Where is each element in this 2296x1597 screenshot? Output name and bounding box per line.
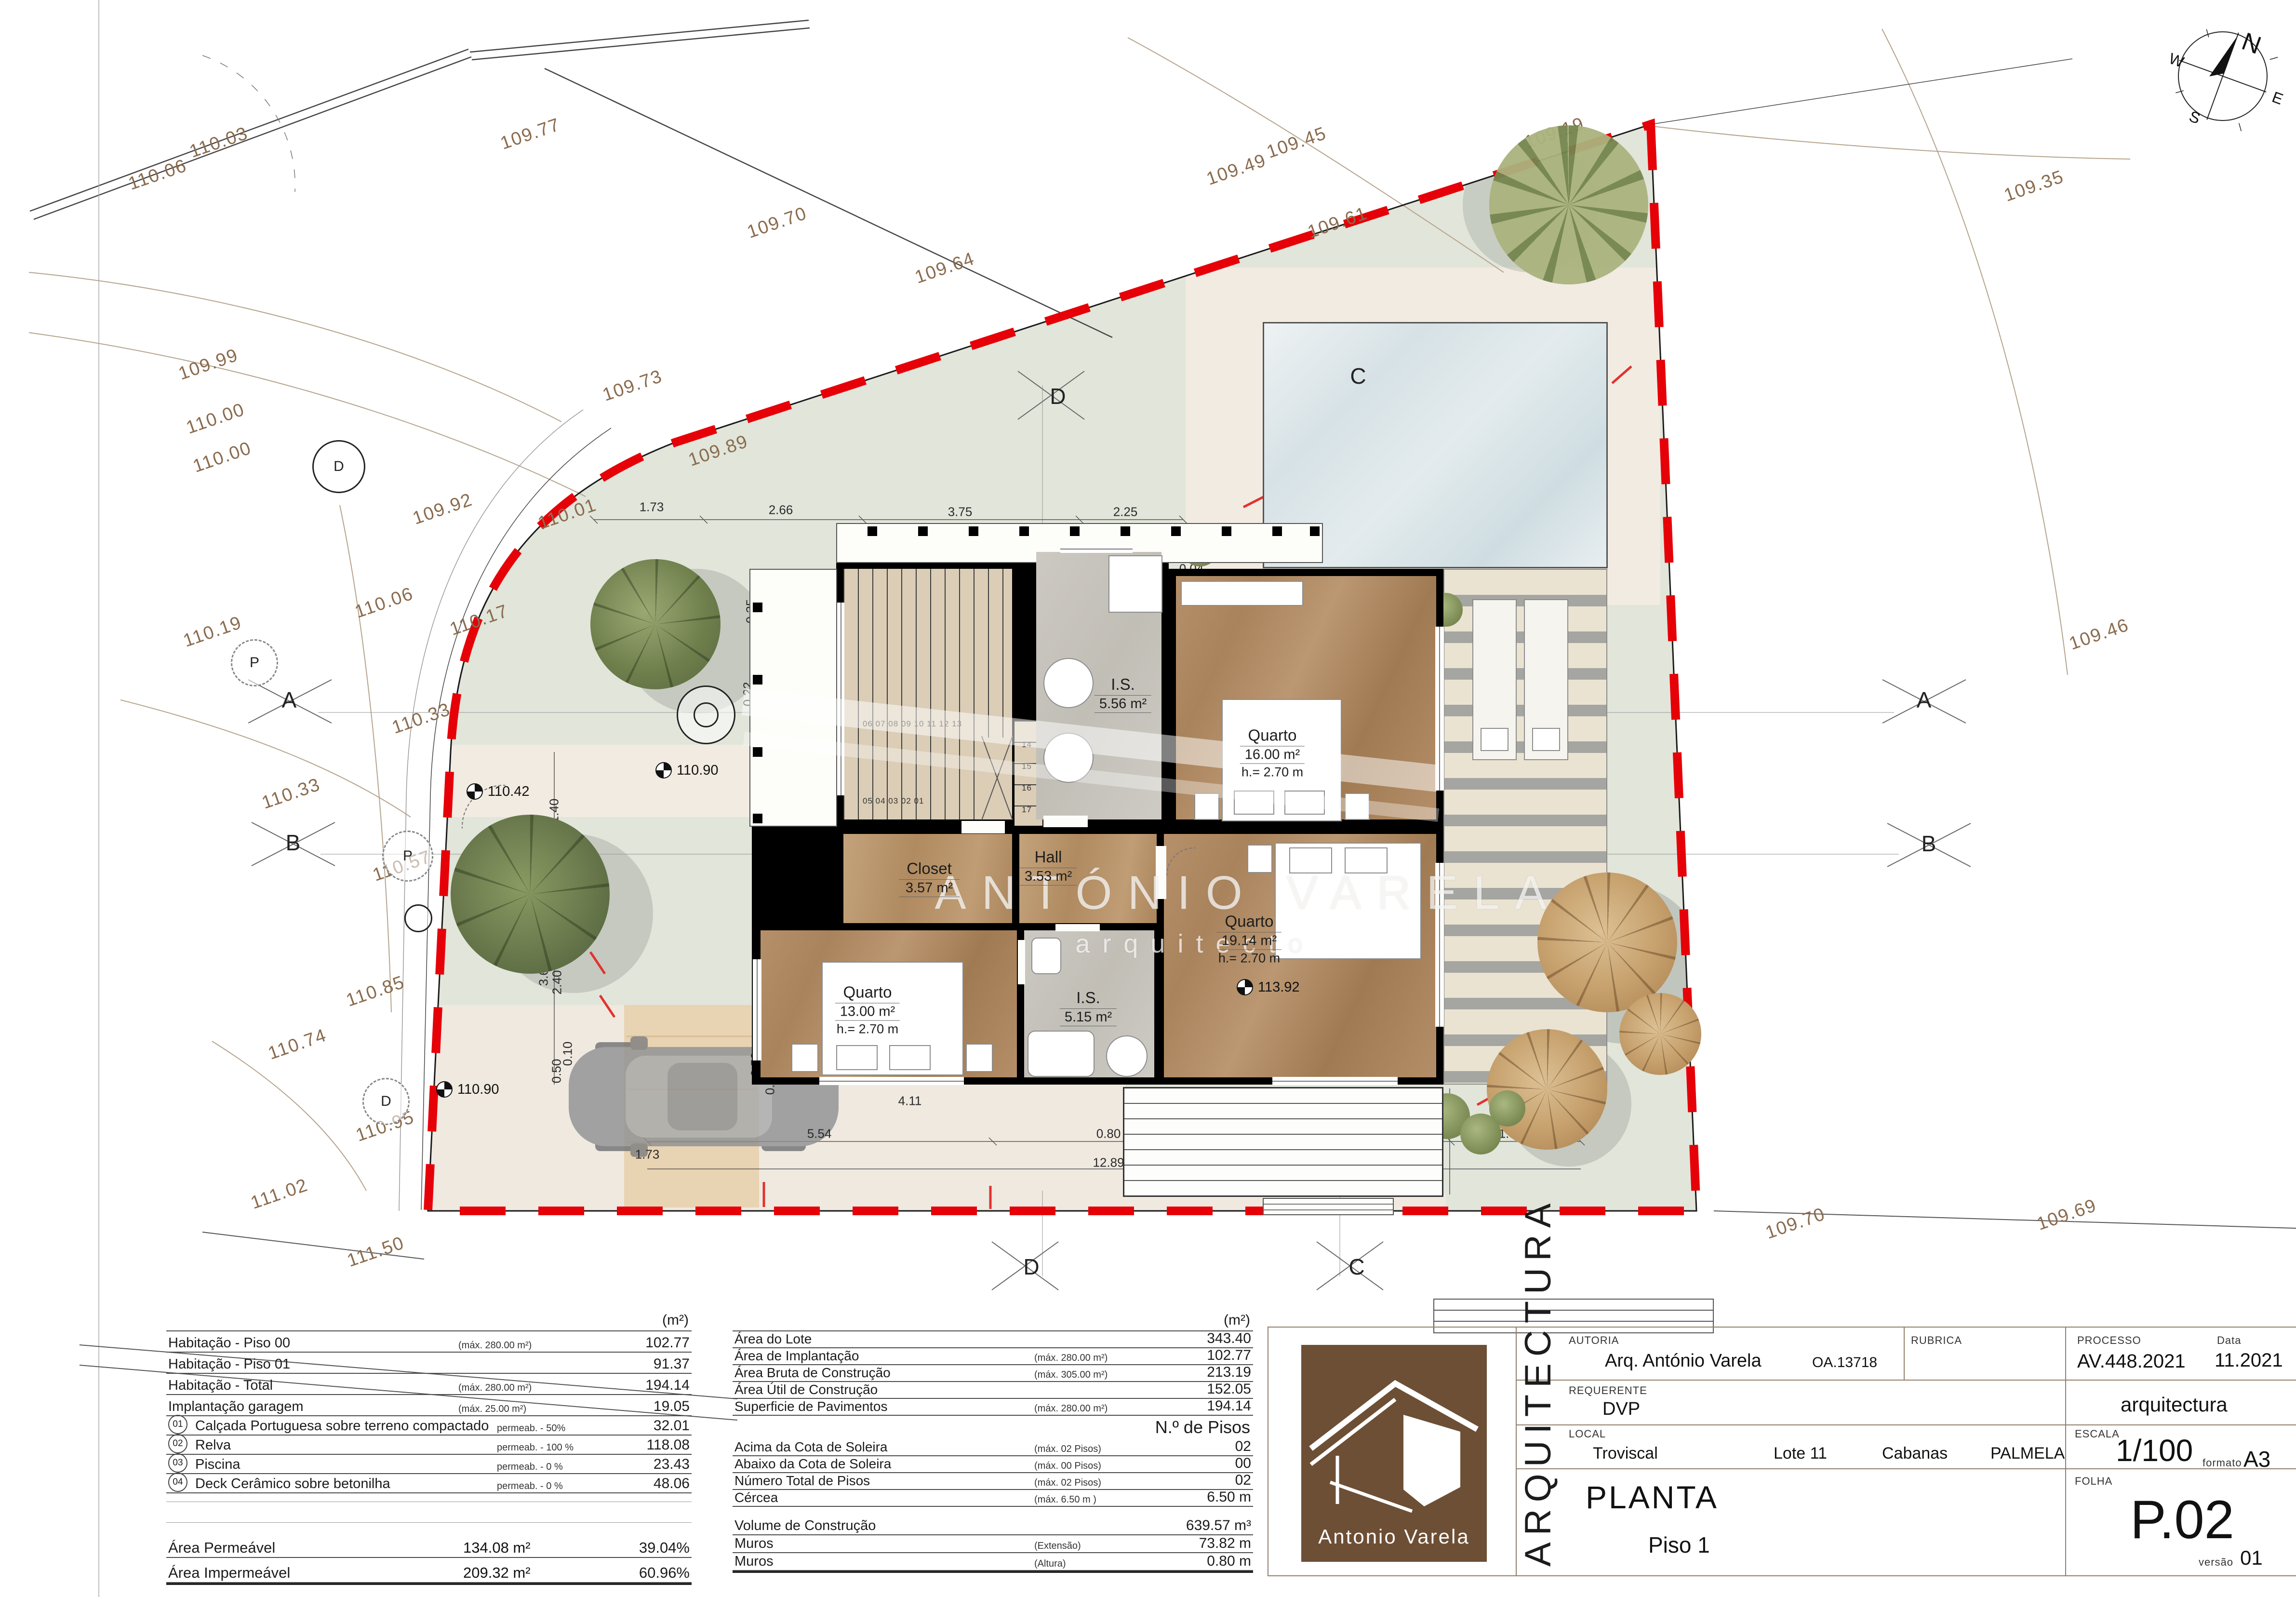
level-marker: 113.92 xyxy=(1237,979,1300,995)
row-permeability: permeab. - 50% xyxy=(497,1423,627,1434)
room-name: I.S. xyxy=(1095,675,1151,696)
local-troviscal: Troviscal xyxy=(1593,1444,1658,1463)
window xyxy=(1060,545,1133,553)
table-superficies: 01Calçada Portuguesa sobre terreno compa… xyxy=(166,1416,692,1493)
room-name: Quarto xyxy=(1217,913,1281,933)
row-note: (máx. 25.00 m²) xyxy=(458,1404,617,1415)
column xyxy=(918,526,928,536)
section-marker-d: D xyxy=(1023,1254,1039,1280)
row-value: 194.14 xyxy=(617,1377,690,1394)
row-label: Área Impermeável xyxy=(168,1564,463,1582)
room-label: Closet3.57 m² xyxy=(899,859,960,897)
table-row: 02Relvapermeab. - 100 %118.08 xyxy=(166,1436,692,1455)
utility-marker-p: P xyxy=(382,831,433,882)
requerente-value: DVP xyxy=(1602,1399,1640,1420)
column xyxy=(969,526,978,536)
logo-house-icon xyxy=(1301,1345,1487,1518)
table-volumes: Volume de Construção639.57 m³Muros(Exten… xyxy=(733,1517,1253,1573)
column xyxy=(868,526,877,536)
row-note: (máx. 6.50 m ) xyxy=(1034,1494,1179,1505)
row-value: 02 xyxy=(1179,1472,1251,1489)
room-area: 19.14 m² xyxy=(1217,933,1281,950)
nightstand xyxy=(791,1044,818,1072)
row-label: Habitação - Piso 00 xyxy=(168,1335,458,1351)
row-label: Área do Lote xyxy=(734,1331,1034,1347)
table-row: Área Permeável134.08 m²39.04% xyxy=(166,1533,692,1558)
row-label: Abaixo da Cota de Soleira xyxy=(734,1456,1034,1472)
row-note: (máx. 305.00 m²) xyxy=(1034,1369,1179,1381)
room-area: 13.00 m² xyxy=(835,1004,900,1021)
section-marker-a: A xyxy=(1917,687,1932,713)
row-value: 134.08 m² xyxy=(463,1539,608,1557)
processo-value: AV.448.2021 xyxy=(2077,1351,2186,1372)
sheet-subtitle: Piso 1 xyxy=(1648,1532,1710,1558)
compass-rose: N E S W xyxy=(2163,17,2285,135)
autumn-tree xyxy=(1619,993,1701,1075)
room-name: Hall xyxy=(1020,848,1077,868)
column xyxy=(1310,526,1320,536)
section-marker-b: B xyxy=(1922,831,1936,857)
row-value: 23.43 xyxy=(627,1456,690,1473)
compass-n: N xyxy=(2238,27,2265,60)
drawing-sheet: N E S W xyxy=(0,0,2296,1597)
compass-e: E xyxy=(2270,88,2285,108)
table-row: Volume de Construção639.57 m³ xyxy=(733,1517,1253,1535)
table-areas-totais: Área Permeável134.08 m²39.04%Área Imperm… xyxy=(166,1533,692,1585)
row-label: Superficie de Pavimentos xyxy=(734,1399,1034,1414)
table-row: Muros(Altura)0.80 m xyxy=(733,1553,1253,1571)
table-row: Área Impermeável209.32 m²60.96% xyxy=(166,1558,692,1583)
row-value: 91.37 xyxy=(617,1356,690,1372)
compass-s: S xyxy=(2187,107,2203,127)
row-number-badge: 04 xyxy=(168,1473,187,1492)
column xyxy=(1121,526,1130,536)
formato-label: formato xyxy=(2203,1457,2242,1469)
table-row: 04Deck Cerâmico sobre betonilhapermeab. … xyxy=(166,1474,692,1493)
row-value: 639.57 m³ xyxy=(1140,1517,1251,1534)
door-gap xyxy=(1043,816,1088,827)
logo-antonio-varela: Antonio Varela xyxy=(1301,1345,1487,1562)
manhole-marker xyxy=(677,685,735,744)
room-height: h.= 2.70 m xyxy=(835,1021,900,1037)
table-row: Cércea(máx. 6.50 m )6.50 m xyxy=(733,1490,1253,1507)
titleblock-discipline-vertical: ARQUITECTURA xyxy=(1517,1345,1559,1567)
table-unit-header: (m²) xyxy=(166,1312,692,1331)
local-lote: Lote 11 xyxy=(1774,1444,1827,1463)
row-label: Área Bruta de Construção xyxy=(734,1365,1034,1381)
door-gap xyxy=(961,821,1005,833)
pergola-terrace xyxy=(1123,1087,1443,1197)
lounger-pillow xyxy=(1481,728,1508,751)
row-value: 00 xyxy=(1179,1455,1251,1472)
bush xyxy=(1489,1090,1525,1127)
dimension-label: 3.75 xyxy=(948,505,973,520)
table-row: Área do Lote343.40 xyxy=(733,1331,1253,1348)
row-label: Implantação garagem xyxy=(168,1399,458,1415)
dimension-label: 0.50 xyxy=(549,1059,564,1084)
manhole-inner xyxy=(694,702,719,727)
row-label: Cércea xyxy=(734,1490,1034,1505)
utility-marker-d: D xyxy=(312,440,365,493)
column xyxy=(753,675,762,684)
autoria-number: OA.13718 xyxy=(1812,1355,1877,1371)
row-note: (máx. 280.00 m²) xyxy=(458,1340,617,1351)
row-label: Área Permeável xyxy=(168,1539,463,1557)
autumn-tree xyxy=(1487,1029,1607,1150)
room-area: 3.57 m² xyxy=(899,880,960,897)
bath-sink xyxy=(1106,1035,1148,1077)
level-value: 113.92 xyxy=(1258,980,1300,995)
row-label: Habitação - Piso 01 xyxy=(168,1356,458,1372)
local-palmela: PALMELA xyxy=(1990,1444,2065,1463)
room-label: Quarto16.00 m²h.= 2.70 m xyxy=(1240,726,1305,780)
column xyxy=(1171,526,1181,536)
row-label: Muros xyxy=(734,1536,1034,1552)
row-value: 152.05 xyxy=(1179,1381,1251,1397)
row-value: 6.50 m xyxy=(1179,1489,1251,1505)
table-row: Área Bruta de Construção(máx. 305.00 m²)… xyxy=(733,1365,1253,1382)
level-value: 110.90 xyxy=(457,1082,499,1098)
room-area: 5.56 m² xyxy=(1095,696,1151,713)
local-cabanas: Cabanas xyxy=(1882,1444,1948,1463)
row-note: (Extensão) xyxy=(1034,1541,1140,1552)
window xyxy=(753,959,761,1060)
level-value: 110.42 xyxy=(488,784,530,800)
dimension-label: 2.40 xyxy=(550,970,565,995)
bath-counter xyxy=(1108,555,1162,613)
row-number-badge: 02 xyxy=(168,1434,187,1453)
table-row: Abaixo da Cota de Soleira(máx. 00 Pisos)… xyxy=(733,1456,1253,1473)
room-name: Quarto xyxy=(1240,726,1305,747)
bath-sink xyxy=(1043,658,1094,708)
row-number-badge: 01 xyxy=(168,1415,187,1434)
column xyxy=(1070,526,1080,536)
row-value: 02 xyxy=(1179,1438,1251,1455)
row-value: 102.77 xyxy=(1179,1347,1251,1364)
table-row: Implantação garagem(máx. 25.00 m²)19.05 xyxy=(166,1395,692,1416)
local-label: LOCAL xyxy=(1569,1428,1606,1440)
row-permeability: permeab. - 100 % xyxy=(497,1442,627,1453)
bed-pillow xyxy=(889,1045,931,1070)
table-habitacao: (m²)Habitação - Piso 00(máx. 280.00 m²)1… xyxy=(166,1312,692,1416)
versao-label: versão xyxy=(2199,1556,2233,1569)
column xyxy=(1222,526,1231,536)
row-label: Relva xyxy=(195,1437,497,1453)
row-value: 213.19 xyxy=(1179,1364,1251,1381)
level-marker: 110.90 xyxy=(436,1081,499,1098)
tree xyxy=(451,815,610,974)
column xyxy=(753,814,762,823)
row-permeability: permeab. - 0 % xyxy=(497,1481,627,1492)
row-value: 102.77 xyxy=(617,1335,690,1351)
processo-label: PROCESSO xyxy=(2077,1334,2141,1347)
terrace-step xyxy=(1263,1198,1394,1215)
level-symbol xyxy=(1237,979,1253,995)
utility-marker-d: D xyxy=(362,1078,410,1125)
room-label: Hall3.53 m² xyxy=(1020,848,1077,886)
column xyxy=(1272,526,1282,536)
room-name: I.S. xyxy=(1060,989,1117,1009)
row-value: 73.82 m xyxy=(1140,1535,1251,1552)
table-row: Área Útil de Construção152.05 xyxy=(733,1382,1253,1399)
row-value: 0.80 m xyxy=(1140,1553,1251,1570)
discipline-value: arquitectura xyxy=(2121,1393,2228,1416)
row-label: Área Útil de Construção xyxy=(734,1382,1034,1397)
table-unit-header: (m²) xyxy=(733,1312,1253,1331)
room-label: Quarto13.00 m²h.= 2.70 m xyxy=(835,983,900,1037)
bathtub xyxy=(1028,1031,1095,1077)
row-number-badge: 03 xyxy=(168,1453,187,1473)
dimension-label: 2.66 xyxy=(769,503,793,518)
level-marker: 110.42 xyxy=(467,783,530,800)
row-value: 19.05 xyxy=(617,1398,690,1415)
row-value: 32.01 xyxy=(627,1418,690,1434)
room-name: Closet xyxy=(899,859,960,880)
pisos-header: N.º de Pisos xyxy=(733,1417,1253,1439)
escala-label: ESCALA xyxy=(2075,1428,2120,1440)
table-row: Muros(Extensão)73.82 m xyxy=(733,1535,1253,1553)
row-value: 48.06 xyxy=(627,1476,690,1492)
row-value: 209.32 m² xyxy=(463,1564,608,1582)
row-note: (Altura) xyxy=(1034,1558,1140,1570)
stair-numbers-bottom: 05 04 03 02 01 xyxy=(863,796,924,806)
level-value: 110.90 xyxy=(677,763,719,778)
table-pisos: N.º de PisosAcima da Cota de Soleira(máx… xyxy=(733,1417,1253,1507)
row-label: Acima da Cota de Soleira xyxy=(734,1439,1034,1455)
formato-value: A3 xyxy=(2243,1446,2270,1472)
retaining-wall xyxy=(1434,1299,1713,1333)
escala-value: 1/100 xyxy=(2116,1433,2193,1468)
wardrobe xyxy=(1181,581,1303,606)
row-label: Habitação - Total xyxy=(168,1378,458,1394)
row-note: (máx. 02 Pisos) xyxy=(1034,1444,1179,1455)
row-value: 194.14 xyxy=(1179,1398,1251,1414)
room-area: 16.00 m² xyxy=(1240,747,1305,764)
lounger-pillow xyxy=(1532,728,1560,751)
window xyxy=(1272,1077,1398,1085)
section-marker-b: B xyxy=(286,830,301,856)
requerente-label: REQUERENTE xyxy=(1569,1384,1647,1397)
section-marker-d: D xyxy=(1050,383,1066,409)
table-row: Área de Implantação(máx. 280.00 m²)102.7… xyxy=(733,1348,1253,1365)
section-marker-a: A xyxy=(282,687,297,713)
table-row: 01Calçada Portuguesa sobre terreno compa… xyxy=(166,1416,692,1436)
row-label: Número Total de Pisos xyxy=(734,1473,1034,1489)
autoria-label: AUTORIA xyxy=(1569,1334,1619,1347)
section-marker-c: C xyxy=(1348,1254,1364,1280)
rubrica-label: RUBRICA xyxy=(1911,1334,1962,1347)
row-percent: 39.04% xyxy=(608,1539,690,1557)
row-label: Piscina xyxy=(195,1457,497,1473)
room-height: h.= 2.70 m xyxy=(1217,950,1281,966)
table-row: Superficie de Pavimentos(máx. 280.00 m²)… xyxy=(733,1399,1253,1416)
folha-label: FOLHA xyxy=(2075,1475,2112,1488)
row-value: 343.40 xyxy=(1179,1330,1251,1347)
row-percent: 60.96% xyxy=(608,1564,690,1582)
level-symbol xyxy=(655,762,672,778)
room-name: Quarto xyxy=(835,983,900,1004)
level-marker: 110.90 xyxy=(655,762,719,778)
column xyxy=(753,747,762,757)
level-symbol xyxy=(467,783,483,800)
autoria-value: Arq. António Varela xyxy=(1605,1351,1762,1371)
row-note: (máx. 02 Pisos) xyxy=(1034,1477,1179,1489)
data-value: 11.2021 xyxy=(2215,1350,2283,1371)
row-label: Calçada Portuguesa sobre terreno compact… xyxy=(195,1418,497,1434)
compass-w: W xyxy=(2167,50,2187,71)
row-label: Volume de Construção xyxy=(734,1518,1034,1534)
row-note: (máx. 280.00 m²) xyxy=(458,1382,617,1394)
door-gap xyxy=(1018,940,1025,984)
table-row: Habitação - Piso 0191.37 xyxy=(166,1353,692,1374)
room-label: I.S.5.15 m² xyxy=(1060,989,1117,1026)
table-row: Número Total de Pisos(máx. 02 Pisos)02 xyxy=(733,1473,1253,1490)
column xyxy=(753,603,762,612)
column xyxy=(1019,526,1029,536)
room-area: 3.53 m² xyxy=(1020,868,1077,886)
dimension-label: 4.11 xyxy=(898,1094,922,1109)
stair-void-x xyxy=(981,735,1015,822)
nightstand xyxy=(966,1044,993,1072)
level-symbol xyxy=(436,1081,453,1098)
room-label: I.S.5.56 m² xyxy=(1095,675,1151,713)
folha-value: P.02 xyxy=(2130,1489,2234,1551)
dimension-label: 2.25 xyxy=(1113,505,1138,520)
section-marker-c: C xyxy=(1350,363,1366,389)
dimension-label: 0.80 xyxy=(1096,1127,1121,1141)
room-height: h.= 2.70 m xyxy=(1240,764,1305,780)
tree xyxy=(590,559,721,689)
row-label: Deck Cerâmico sobre betonilha xyxy=(195,1476,497,1492)
toilet xyxy=(1031,938,1061,974)
versao-value: 01 xyxy=(2240,1546,2263,1570)
palm-tree xyxy=(1489,125,1648,284)
row-permeability: permeab. - 0 % xyxy=(497,1462,627,1473)
room-area: 5.15 m² xyxy=(1060,1009,1117,1026)
row-label: Muros xyxy=(734,1554,1034,1570)
row-note: (máx. 280.00 m²) xyxy=(1034,1403,1179,1414)
dimension-label: 5.54 xyxy=(807,1127,832,1141)
utility-marker-p: P xyxy=(231,639,278,686)
data-label: Data xyxy=(2217,1334,2241,1347)
table-row: Habitação - Total(máx. 280.00 m²)194.14 xyxy=(166,1374,692,1395)
logo-name: Antonio Varela xyxy=(1301,1525,1487,1548)
window xyxy=(819,1077,964,1085)
row-note: (máx. 280.00 m²) xyxy=(1034,1353,1179,1364)
dimension-label: 1.73 xyxy=(635,1147,660,1162)
row-value: 118.08 xyxy=(627,1437,690,1453)
bed-pillow xyxy=(836,1045,878,1070)
dimension-label: 1.73 xyxy=(640,500,664,515)
row-label: Área de Implantação xyxy=(734,1348,1034,1364)
table-row: Acima da Cota de Soleira(máx. 02 Pisos)0… xyxy=(733,1439,1253,1456)
sheet-title: PLANTA xyxy=(1586,1479,1719,1516)
table-row: 03Piscinapermeab. - 0 %23.43 xyxy=(166,1455,692,1474)
row-note: (máx. 00 Pisos) xyxy=(1034,1461,1179,1472)
room-label: Quarto19.14 m²h.= 2.70 m xyxy=(1217,913,1281,966)
manhole-marker xyxy=(404,904,432,932)
dimension-label: 12.89 xyxy=(1093,1155,1124,1170)
table-row: Habitação - Piso 00(máx. 280.00 m²)102.7… xyxy=(166,1331,692,1353)
table-lote: (m²)Área do Lote343.40Área de Implantaçã… xyxy=(733,1312,1253,1416)
